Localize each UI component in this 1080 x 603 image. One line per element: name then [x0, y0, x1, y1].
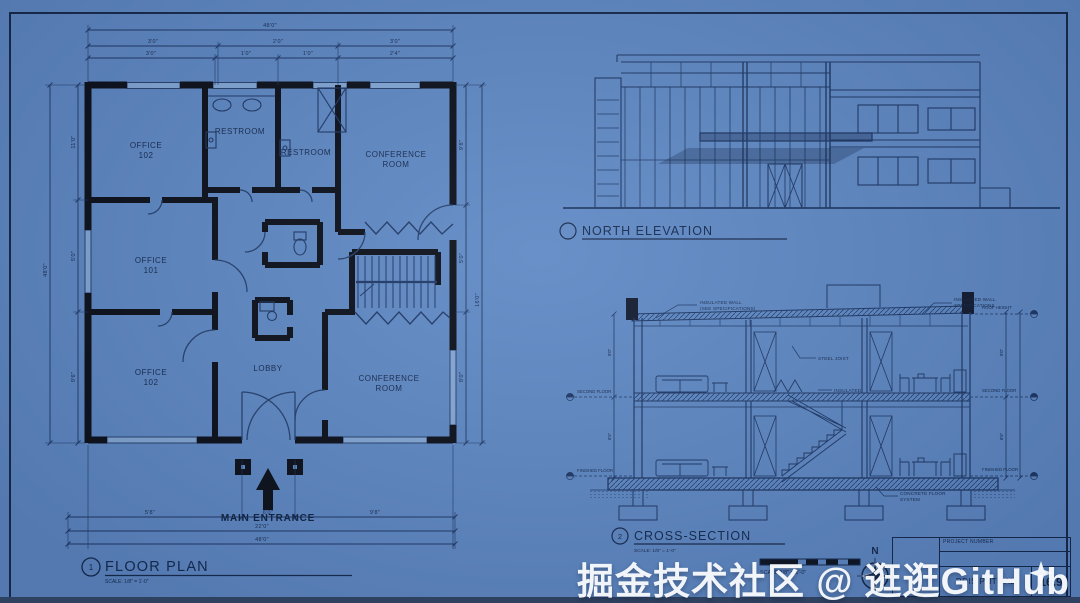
- floor-plan-callout: 1: [89, 563, 94, 572]
- entrance-arrow-icon: [256, 468, 280, 510]
- dim-top-overall: 48'0": [263, 23, 277, 29]
- dim-left-b: 5'0": [71, 251, 77, 261]
- floor-plan-title-text: FLOOR PLAN: [105, 559, 209, 575]
- dim-right-b: 5'0": [459, 253, 465, 263]
- watermark: 掘金技术社区 @ 逛逛GitHub: [577, 551, 1070, 603]
- annotation-insulated-wall-left-2: (SEE SPECIFICATIONS): [700, 306, 756, 311]
- room-label-office-102-top: OFFICE: [130, 141, 162, 150]
- room-label-conference-top-2: ROOM: [383, 160, 410, 169]
- section-dim-right-a: 8'0": [999, 348, 1004, 356]
- dim-right-c: 8'0": [459, 372, 465, 382]
- room-label-conference-bottom: CONFERENCE: [358, 374, 419, 383]
- annotation-concrete-floor-1: CONCRETE FLOOR: [900, 491, 946, 496]
- dim-left-a: 11'0": [71, 135, 77, 148]
- room-label-restroom-2: RESTROOM: [281, 148, 331, 157]
- north-elevation-drawing: NORTH ELEVATION: [555, 40, 1070, 255]
- room-label-conference-bottom-2: ROOM: [376, 384, 403, 393]
- annotation-insulated: INSULATED: [834, 388, 862, 393]
- room-number-office-102-bottom: 102: [144, 378, 159, 387]
- dim-left-c: 9'6": [71, 372, 77, 382]
- annotation-insulated-wall-right-1: INSULATED WALL: [954, 297, 996, 302]
- room-label-conference-top: CONFERENCE: [365, 150, 426, 159]
- floor-plan-title: 1 FLOOR PLAN SCALE: 1/8" = 1'-0": [82, 558, 352, 585]
- dim-bottom1-a: 5'8": [145, 510, 155, 516]
- room-label-office-102-bottom: OFFICE: [135, 368, 167, 377]
- stair: [356, 256, 437, 308]
- dim-top3-c: 1'0": [303, 51, 313, 57]
- dim-left-overall: 48'0": [43, 263, 49, 277]
- elevation-title: NORTH ELEVATION: [560, 223, 787, 239]
- title-block-header: PROJECT NUMBER: [940, 538, 1070, 552]
- level-label-finished-floor-left: FINISHED FLOOR: [577, 468, 613, 473]
- level-label-finished-floor-right: FINISHED FLOOR: [982, 467, 1018, 472]
- annotation-steel-joist: STEEL JOIST: [818, 356, 849, 361]
- extension-lines: [45, 25, 486, 549]
- room-label-restroom-1: RESTROOM: [215, 127, 265, 136]
- annotation-concrete-floor-2: SYSTEM: [900, 497, 920, 502]
- blueprint-sheet: OFFICE 102 RESTROOM RESTROOM CONFERENCE …: [0, 0, 1080, 603]
- section-dim-right-b: 8'6": [999, 432, 1004, 440]
- dim-bottom2: 22'0": [255, 524, 269, 530]
- dim-top3-a: 3'0": [146, 51, 156, 57]
- annotation-insulated-wall-left-1: INSULATED WALL: [700, 300, 742, 305]
- dimension-ticks: [48, 28, 485, 547]
- room-number-office-101: 101: [144, 266, 159, 275]
- dim-right-overall: 16'0": [475, 293, 481, 307]
- dim-top2-a: 3'0": [148, 39, 158, 45]
- dim-top2-b: 2'0": [273, 39, 283, 45]
- dim-top3-b: 1'0": [241, 51, 251, 57]
- main-entrance-label: MAIN ENTRANCE: [221, 513, 315, 524]
- level-label-roof-height-right: ROOF HEIGHT: [982, 305, 1012, 310]
- cross-section-title-text: CROSS-SECTION: [634, 529, 751, 543]
- dim-top2-c: 3'0": [390, 39, 400, 45]
- floor-plan-scale: SCALE: 1/8" = 1'-0": [105, 579, 149, 585]
- room-number-office-102-top: 102: [139, 151, 154, 160]
- elevation-title-text: NORTH ELEVATION: [582, 224, 713, 238]
- section-dim-left-a: 8'0": [607, 348, 612, 356]
- room-label-office-101: OFFICE: [135, 256, 167, 265]
- cross-section-callout: 2: [618, 532, 622, 541]
- level-label-second-floor-right: SECOND FLOOR: [982, 388, 1016, 393]
- dim-bottom3: 48'0": [255, 537, 269, 543]
- level-label-second-floor-left: SECOND FLOOR: [577, 389, 611, 394]
- floor-plan-drawing: OFFICE 102 RESTROOM RESTROOM CONFERENCE …: [0, 0, 540, 603]
- room-label-lobby: LOBBY: [253, 364, 282, 373]
- dim-top3-d: 2'4": [390, 51, 400, 57]
- cross-section-drawing: INSULATED WALL (SEE SPECIFICATIONS) INSU…: [550, 268, 1075, 568]
- dimension-lines: [50, 30, 482, 544]
- section-dim-left-b: 8'6": [607, 432, 612, 440]
- dim-bottom1-c: 9'8": [370, 510, 380, 516]
- dim-right-a: 9'8": [459, 140, 465, 150]
